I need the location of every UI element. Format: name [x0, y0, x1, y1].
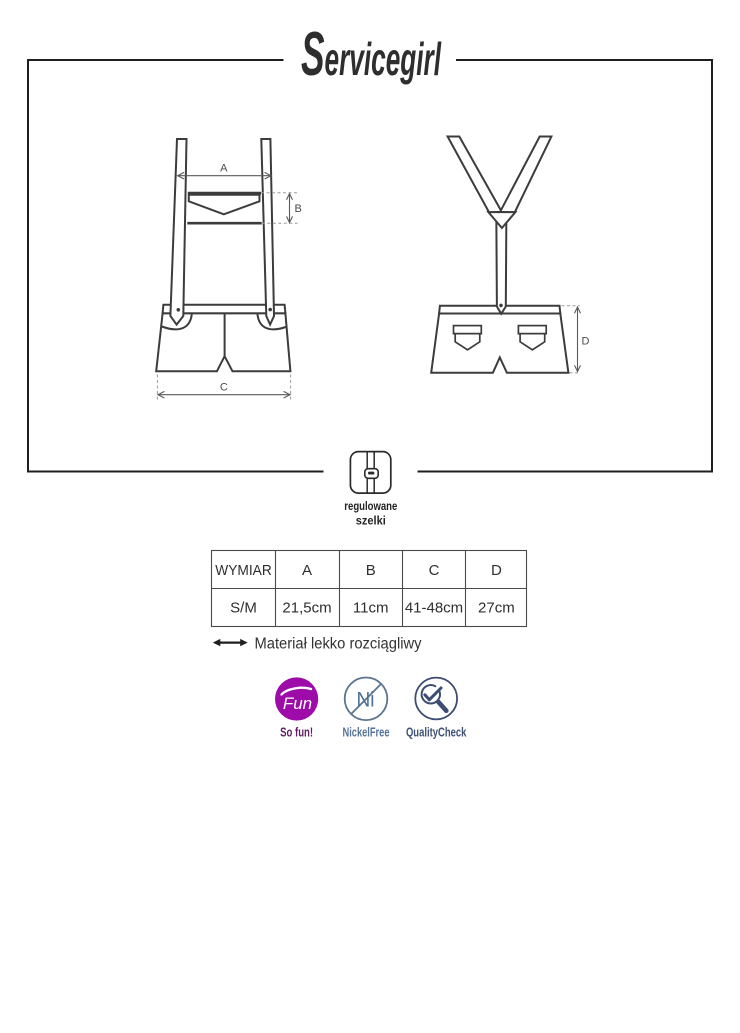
svg-text:Materiał lekko rozciągliwy: Materiał lekko rozciągliwy: [255, 635, 422, 652]
svg-text:21,5cm: 21,5cm: [282, 599, 331, 616]
svg-text:A: A: [220, 163, 228, 175]
svg-text:regulowane: regulowane: [344, 501, 397, 513]
svg-text:WYMIAR: WYMIAR: [215, 562, 272, 579]
svg-text:Fun: Fun: [283, 694, 312, 713]
svg-text:szelki: szelki: [356, 515, 386, 527]
svg-text:Servicegirl: Servicegirl: [301, 20, 442, 89]
svg-text:C: C: [220, 382, 228, 394]
svg-text:D: D: [582, 336, 590, 348]
svg-text:D: D: [491, 562, 502, 579]
svg-text:So fun!: So fun!: [280, 725, 313, 740]
svg-text:NickelFree: NickelFree: [343, 725, 390, 740]
svg-text:C: C: [429, 562, 440, 579]
svg-text:A: A: [302, 562, 312, 579]
svg-text:B: B: [295, 203, 302, 215]
svg-text:Ni: Ni: [357, 689, 375, 712]
svg-text:QualityCheck: QualityCheck: [406, 725, 467, 740]
svg-text:41-48cm: 41-48cm: [405, 599, 463, 616]
svg-text:11cm: 11cm: [353, 599, 389, 616]
svg-text:27cm: 27cm: [478, 599, 515, 616]
svg-text:S/M: S/M: [230, 599, 257, 616]
svg-text:B: B: [366, 562, 376, 579]
